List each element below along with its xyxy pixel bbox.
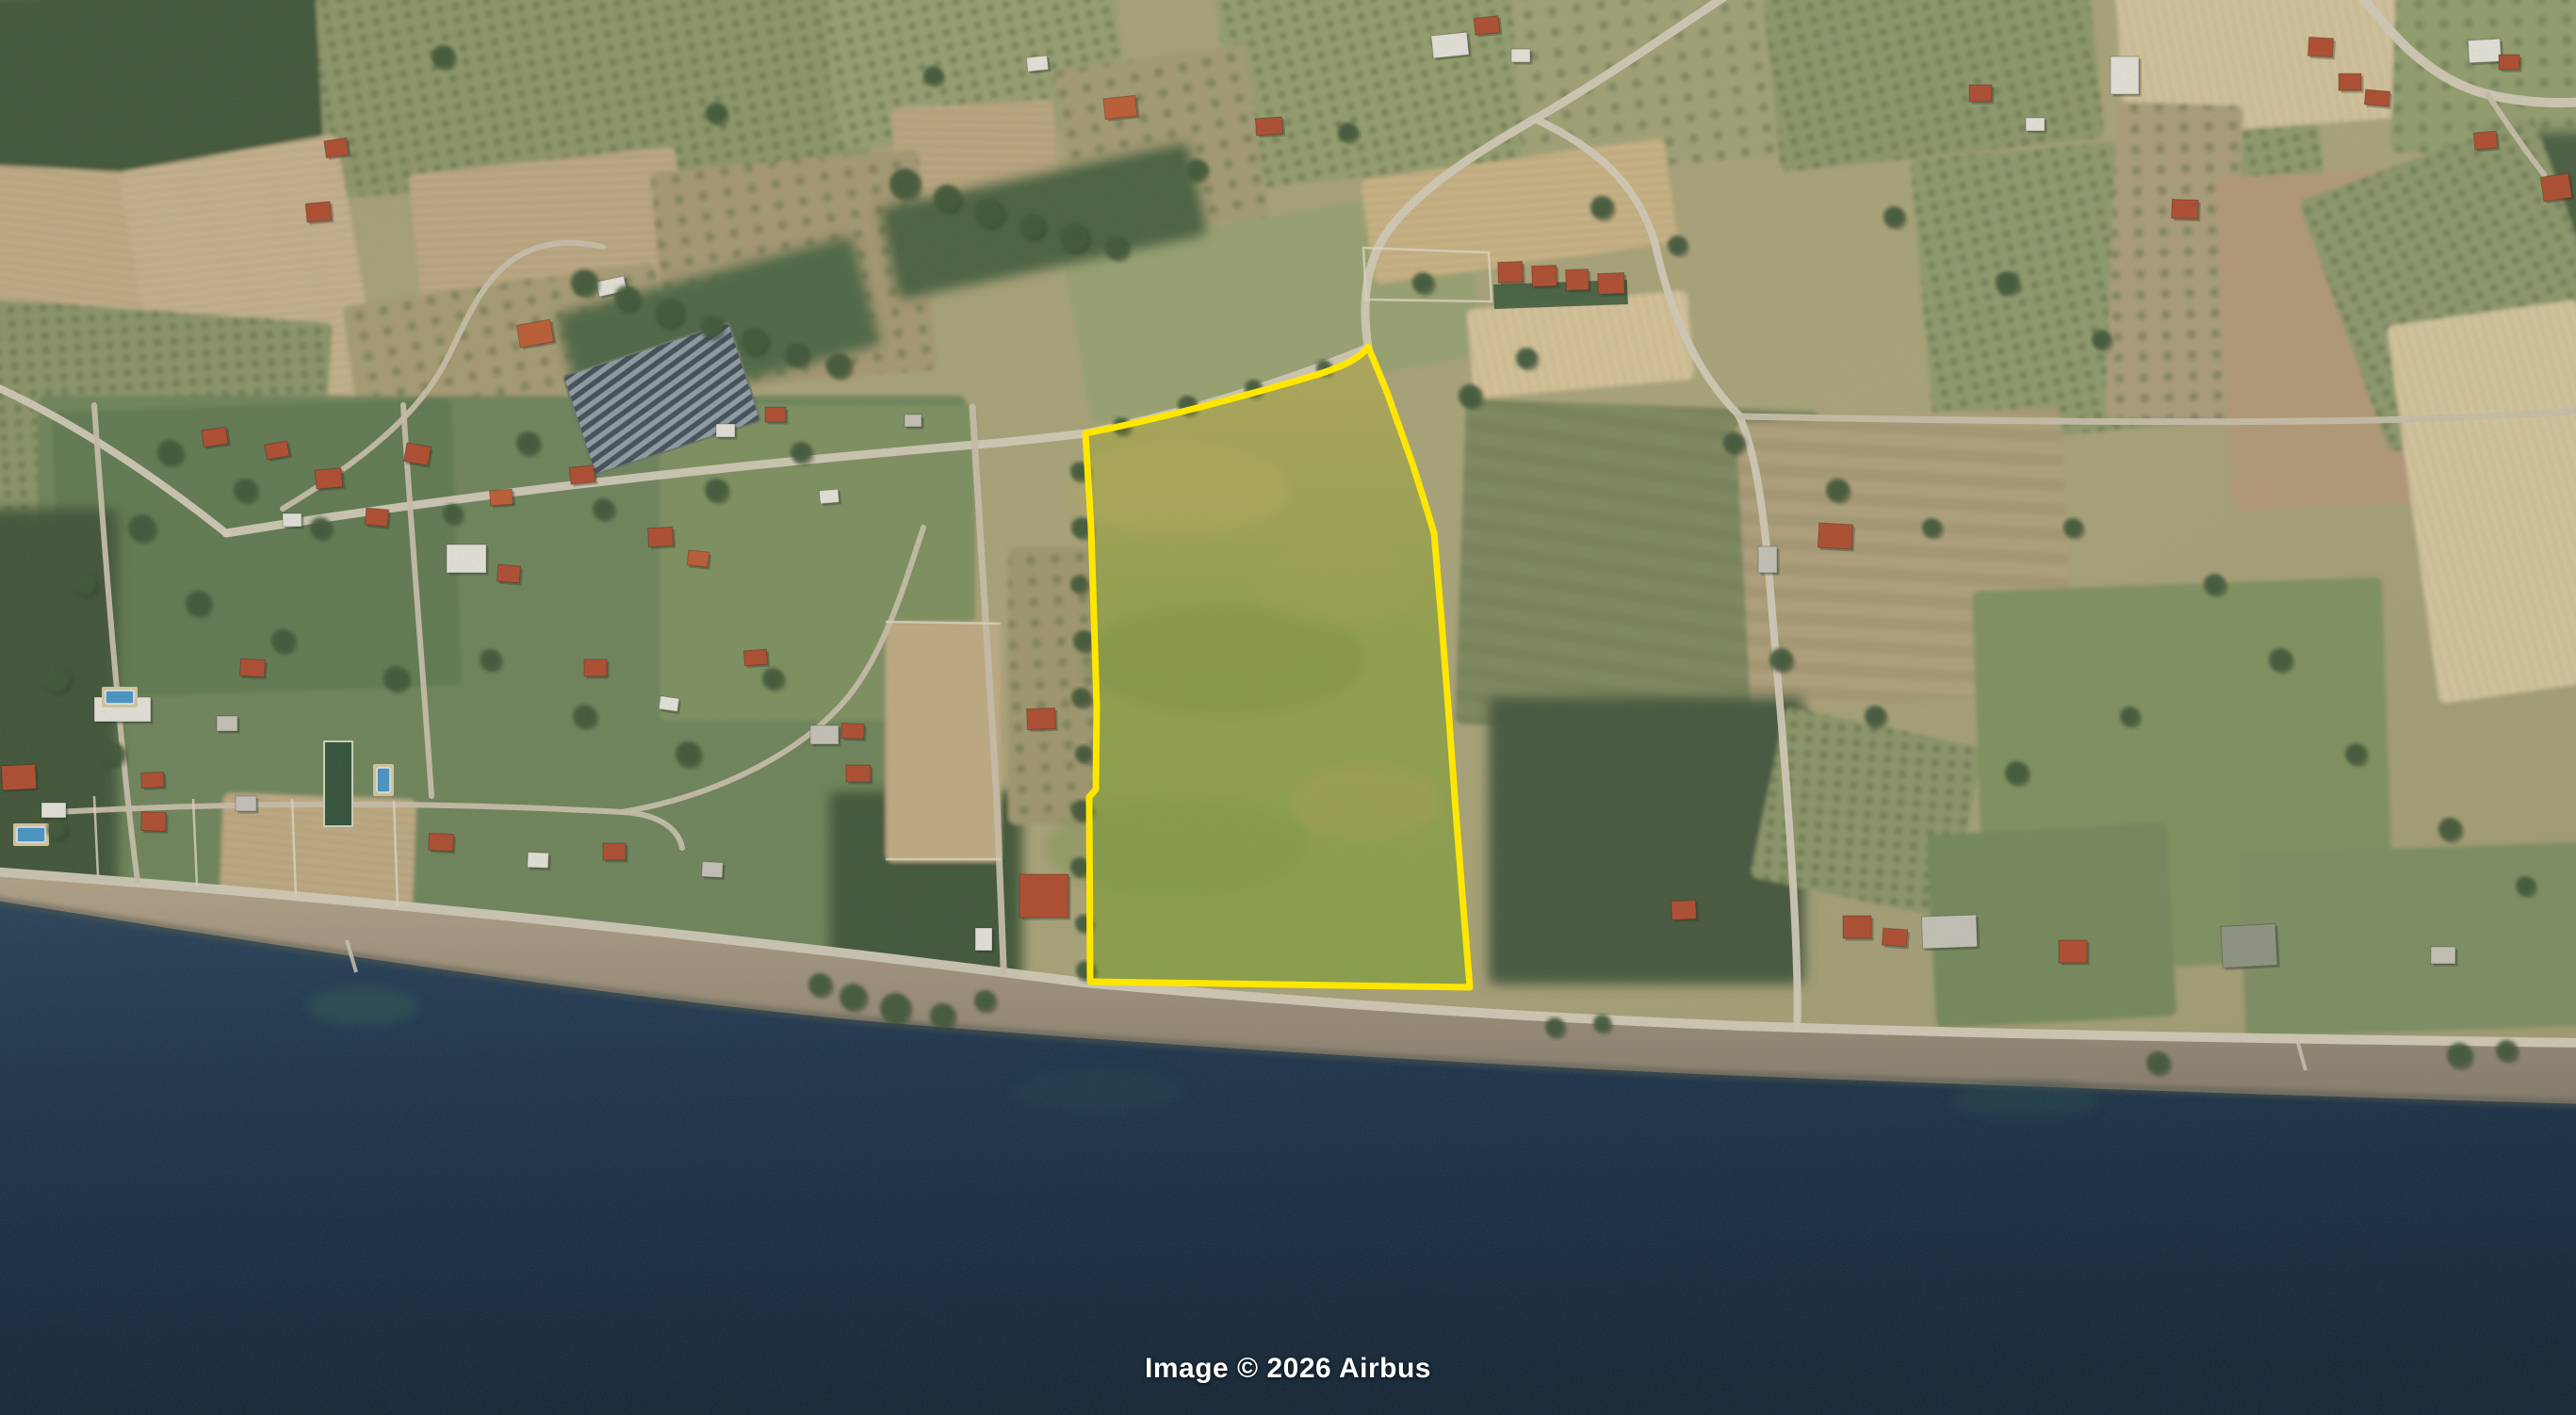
satellite-image bbox=[0, 0, 2576, 1415]
imagery-attribution: Image © 2026 Airbus bbox=[0, 1353, 2576, 1385]
satellite-map-viewport: Image © 2026 Airbus bbox=[0, 0, 2576, 1415]
